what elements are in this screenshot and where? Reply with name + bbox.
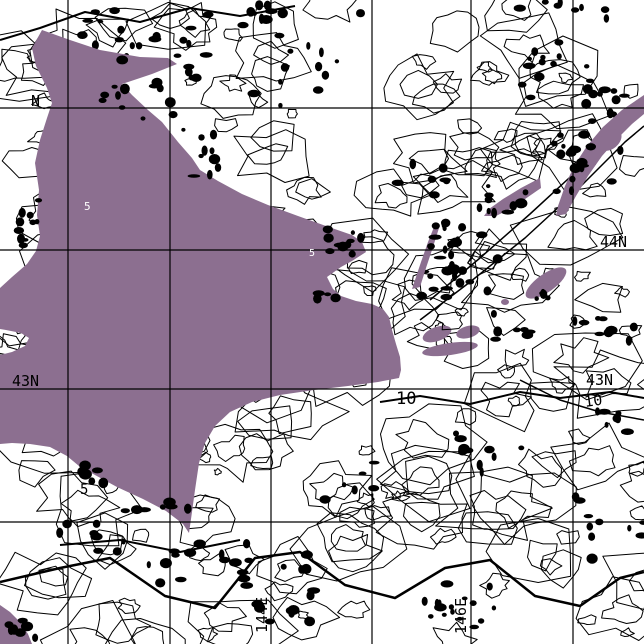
offshore-islet-b: [501, 299, 509, 305]
lat-label-44n-right: 44N: [600, 233, 627, 251]
contour-label-5-on-land-east: 5: [309, 248, 315, 259]
lat-label-45n-left-partial: N: [31, 92, 40, 110]
lat-label-43n-left: 43N: [12, 372, 39, 390]
lat-label-43n-right: 43N: [586, 371, 613, 389]
contour-label-10-right: 10: [583, 391, 603, 411]
lon-label-146e: 146E: [452, 598, 470, 634]
contour-label-5-on-land-north: 5: [84, 200, 91, 213]
contour-label-5-southwest: 5: [80, 482, 88, 498]
contour-map: N44N43N43N144E146E1010555: [0, 0, 644, 644]
lon-label-144e: 144E: [253, 597, 271, 633]
map-svg: N44N43N43N144E146E1010555: [0, 0, 644, 644]
contour-label-10-center: 10: [396, 389, 416, 409]
